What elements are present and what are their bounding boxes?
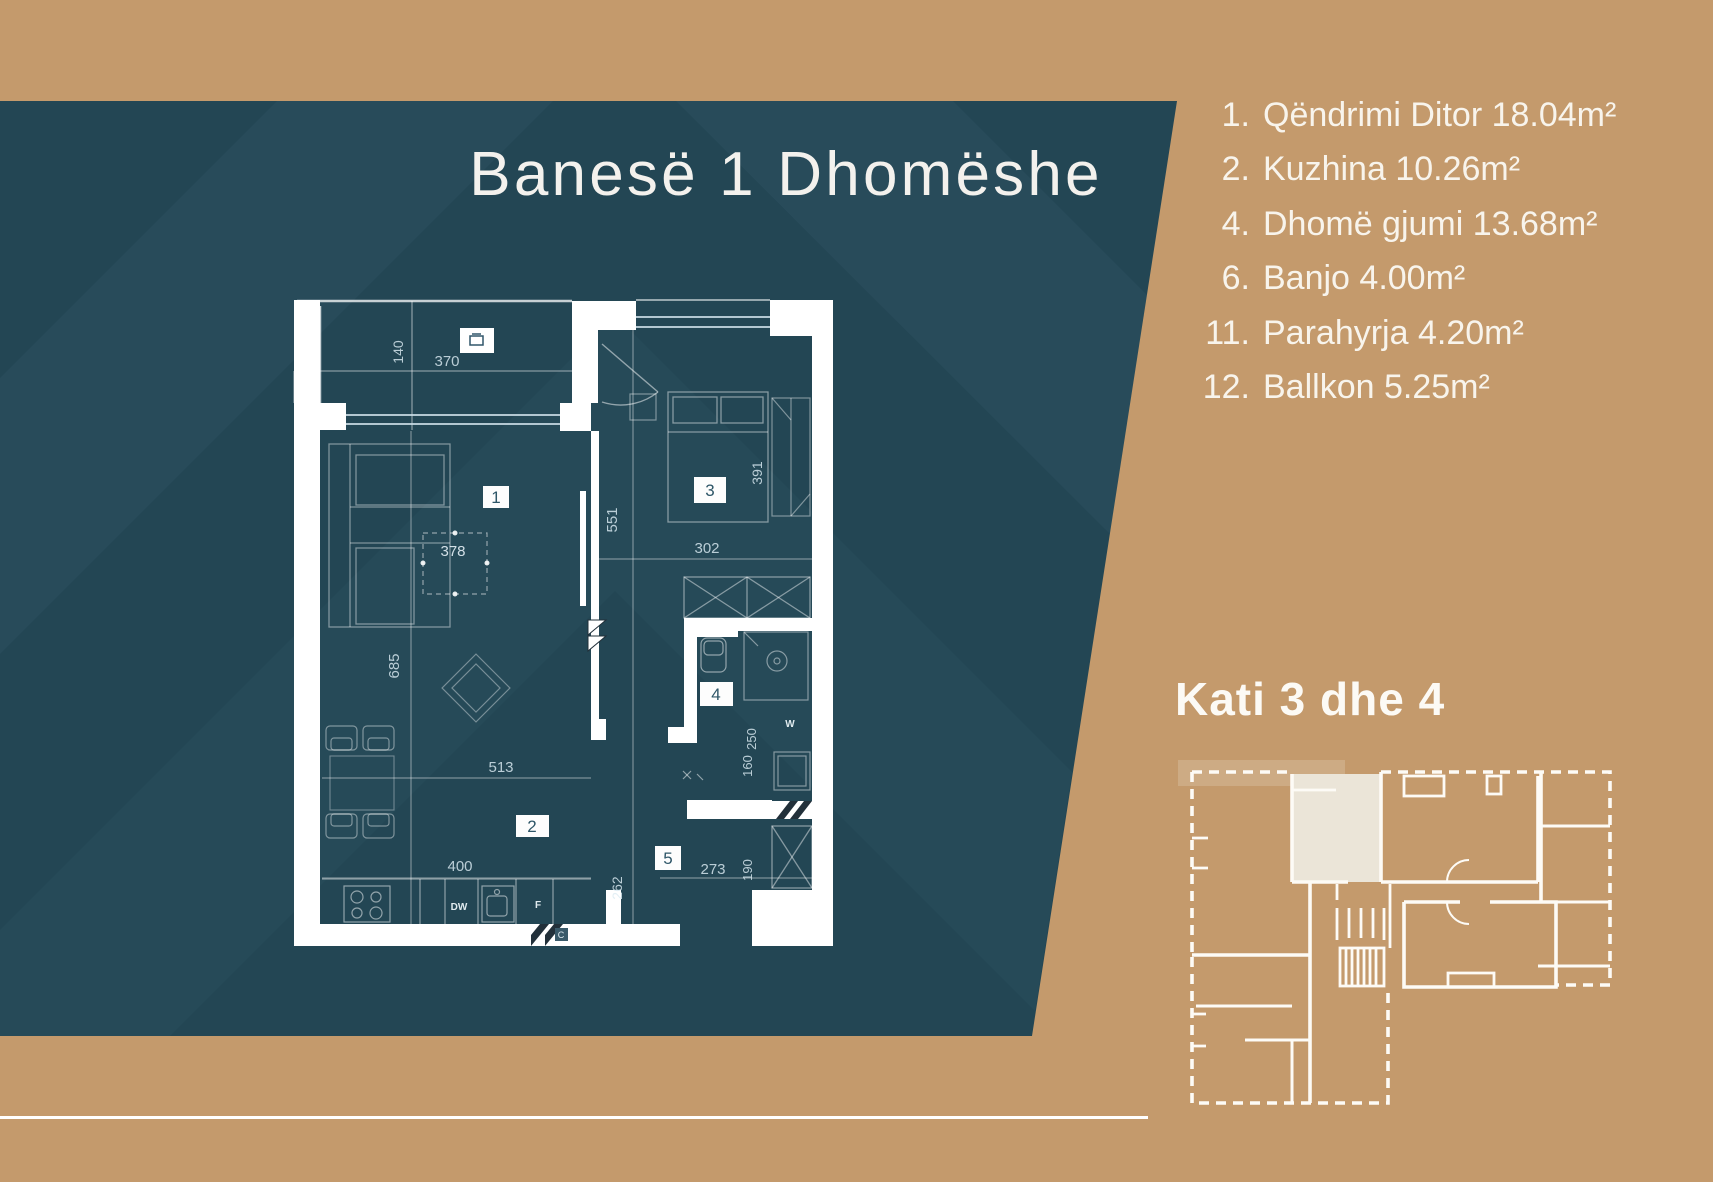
svg-text:273: 273 [700, 861, 725, 878]
svg-text:C: C [558, 930, 565, 940]
svg-text:140: 140 [390, 340, 406, 364]
svg-text:190: 190 [740, 859, 755, 881]
svg-text:W: W [785, 719, 795, 730]
svg-text:250: 250 [744, 728, 759, 750]
svg-text:4: 4 [711, 685, 720, 704]
svg-text:262: 262 [609, 876, 625, 900]
svg-text:F: F [535, 900, 541, 911]
svg-text:378: 378 [440, 543, 465, 560]
svg-text:685: 685 [386, 653, 403, 678]
svg-text:513: 513 [488, 759, 513, 776]
svg-text:5: 5 [663, 849, 672, 868]
svg-text:2: 2 [527, 817, 536, 836]
svg-text:DW: DW [451, 902, 468, 913]
svg-text:551: 551 [604, 507, 621, 532]
svg-text:391: 391 [749, 461, 765, 485]
svg-text:1: 1 [491, 488, 500, 507]
svg-text:160: 160 [740, 755, 755, 777]
svg-text:370: 370 [434, 353, 459, 370]
svg-text:3: 3 [705, 481, 714, 500]
svg-text:400: 400 [447, 858, 472, 875]
svg-text:302: 302 [694, 540, 719, 557]
